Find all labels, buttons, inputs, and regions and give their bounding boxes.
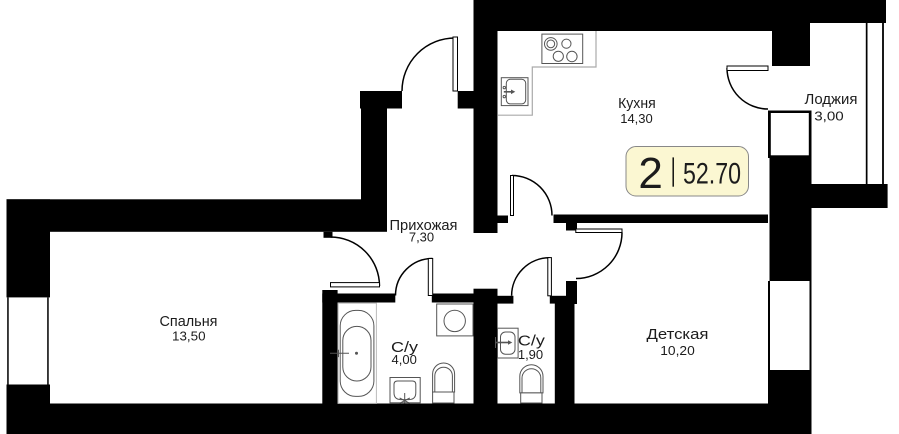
svg-text:10,20: 10,20: [660, 343, 695, 358]
svg-text:13,50: 13,50: [172, 328, 206, 343]
svg-text:Кухня: Кухня: [618, 95, 656, 112]
svg-text:52.70: 52.70: [683, 158, 741, 191]
svg-text:3,00: 3,00: [814, 108, 844, 123]
svg-text:Детская: Детская: [647, 326, 709, 343]
svg-text:Спальня: Спальня: [160, 313, 218, 330]
svg-text:4,00: 4,00: [392, 352, 417, 367]
svg-text:14,30: 14,30: [620, 111, 653, 126]
svg-text:7,30: 7,30: [409, 229, 434, 244]
svg-text:2: 2: [638, 149, 662, 198]
svg-text:Лоджия: Лоджия: [805, 91, 858, 108]
svg-text:1,90: 1,90: [518, 347, 543, 362]
